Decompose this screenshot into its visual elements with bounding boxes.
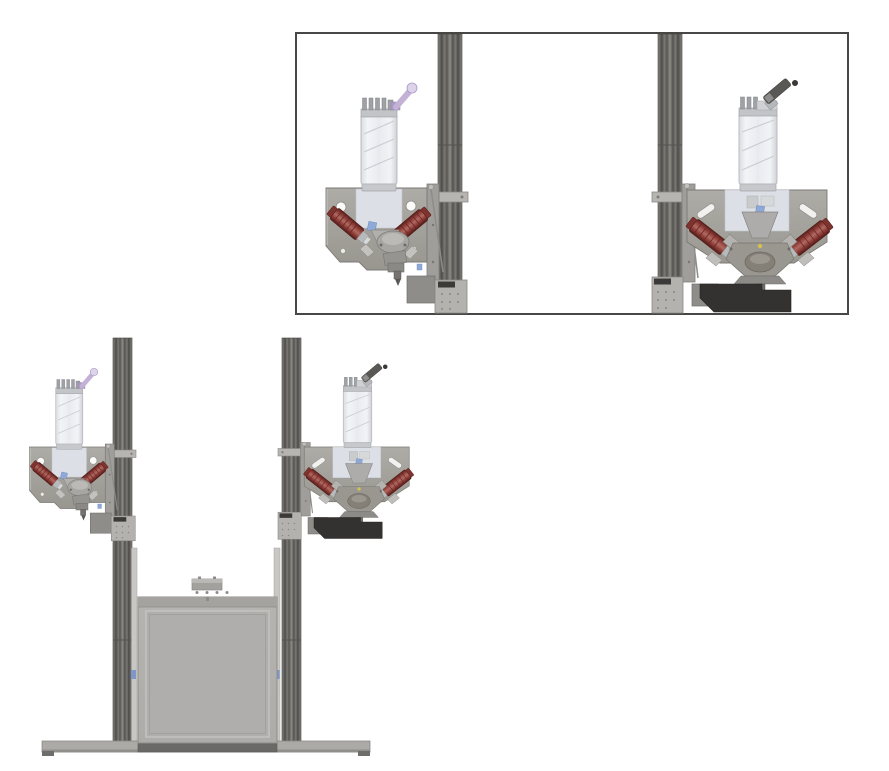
inset-rail-right [658,34,682,313]
blue-clip [131,670,136,679]
lift-strip-left [132,548,138,743]
inset-rail-left [438,34,462,313]
cad-figure [0,0,889,771]
inset-view [296,33,848,314]
build-chamber [138,597,277,752]
chamber-bottom-strip [138,743,277,752]
chamber-panel [146,611,269,737]
base-foot [42,751,54,756]
rail-right [282,338,301,744]
cad-drawing [0,0,889,771]
base-foot [358,751,370,756]
